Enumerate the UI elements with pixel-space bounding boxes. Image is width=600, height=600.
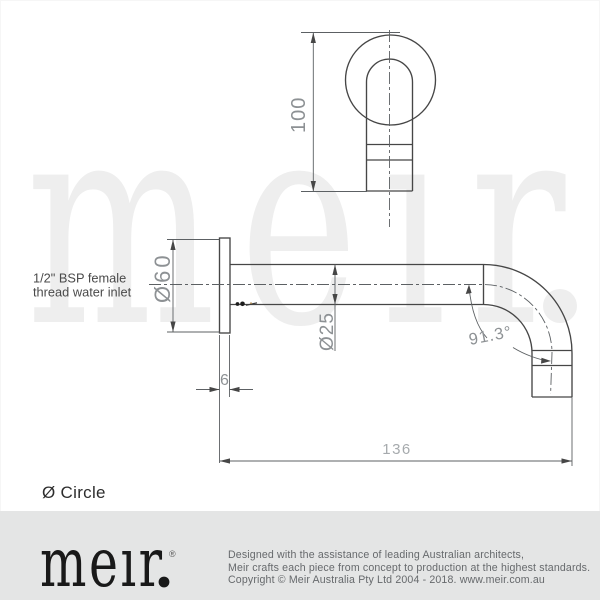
meir-logo-period [159, 577, 170, 588]
footer-line-2: Meir crafts each piece from concept to p… [228, 562, 590, 575]
dim-value-136: 136 [382, 441, 412, 458]
registered-mark-icon: ® [169, 549, 176, 559]
footer-line-3: Copyright © Meir Australia Pty Ltd 2004 … [228, 574, 590, 587]
dimension-spout-reach: 136 [220, 397, 573, 466]
inlet-note-line1: 1/2" BSP female [33, 271, 126, 286]
watermark-period [543, 289, 577, 323]
footer-line-1: Designed with the assistance of leading … [228, 549, 590, 562]
dim-value-100: 100 [288, 97, 310, 133]
dim-value-60: Ø60 [150, 252, 175, 303]
inlet-annotation: 1/2" BSP female thread water inlet [33, 271, 132, 300]
arrow-right-icon [562, 458, 573, 463]
meir-logo: meır ® [38, 542, 208, 596]
dim-value-6: 6 [220, 372, 229, 389]
arrow-up-icon [311, 33, 316, 44]
arrow-left-icon [220, 458, 231, 463]
inlet-note-line2: thread water inlet [33, 285, 132, 300]
spec-sheet-page: meır 100 [0, 0, 600, 600]
dim-value-25: Ø25 [317, 312, 338, 351]
technical-drawing: meır 100 [0, 0, 600, 512]
meir-logo-text: meır [40, 542, 165, 596]
footer-text-block: Designed with the assistance of leading … [228, 549, 590, 587]
shape-note: Ø Circle [42, 483, 106, 502]
